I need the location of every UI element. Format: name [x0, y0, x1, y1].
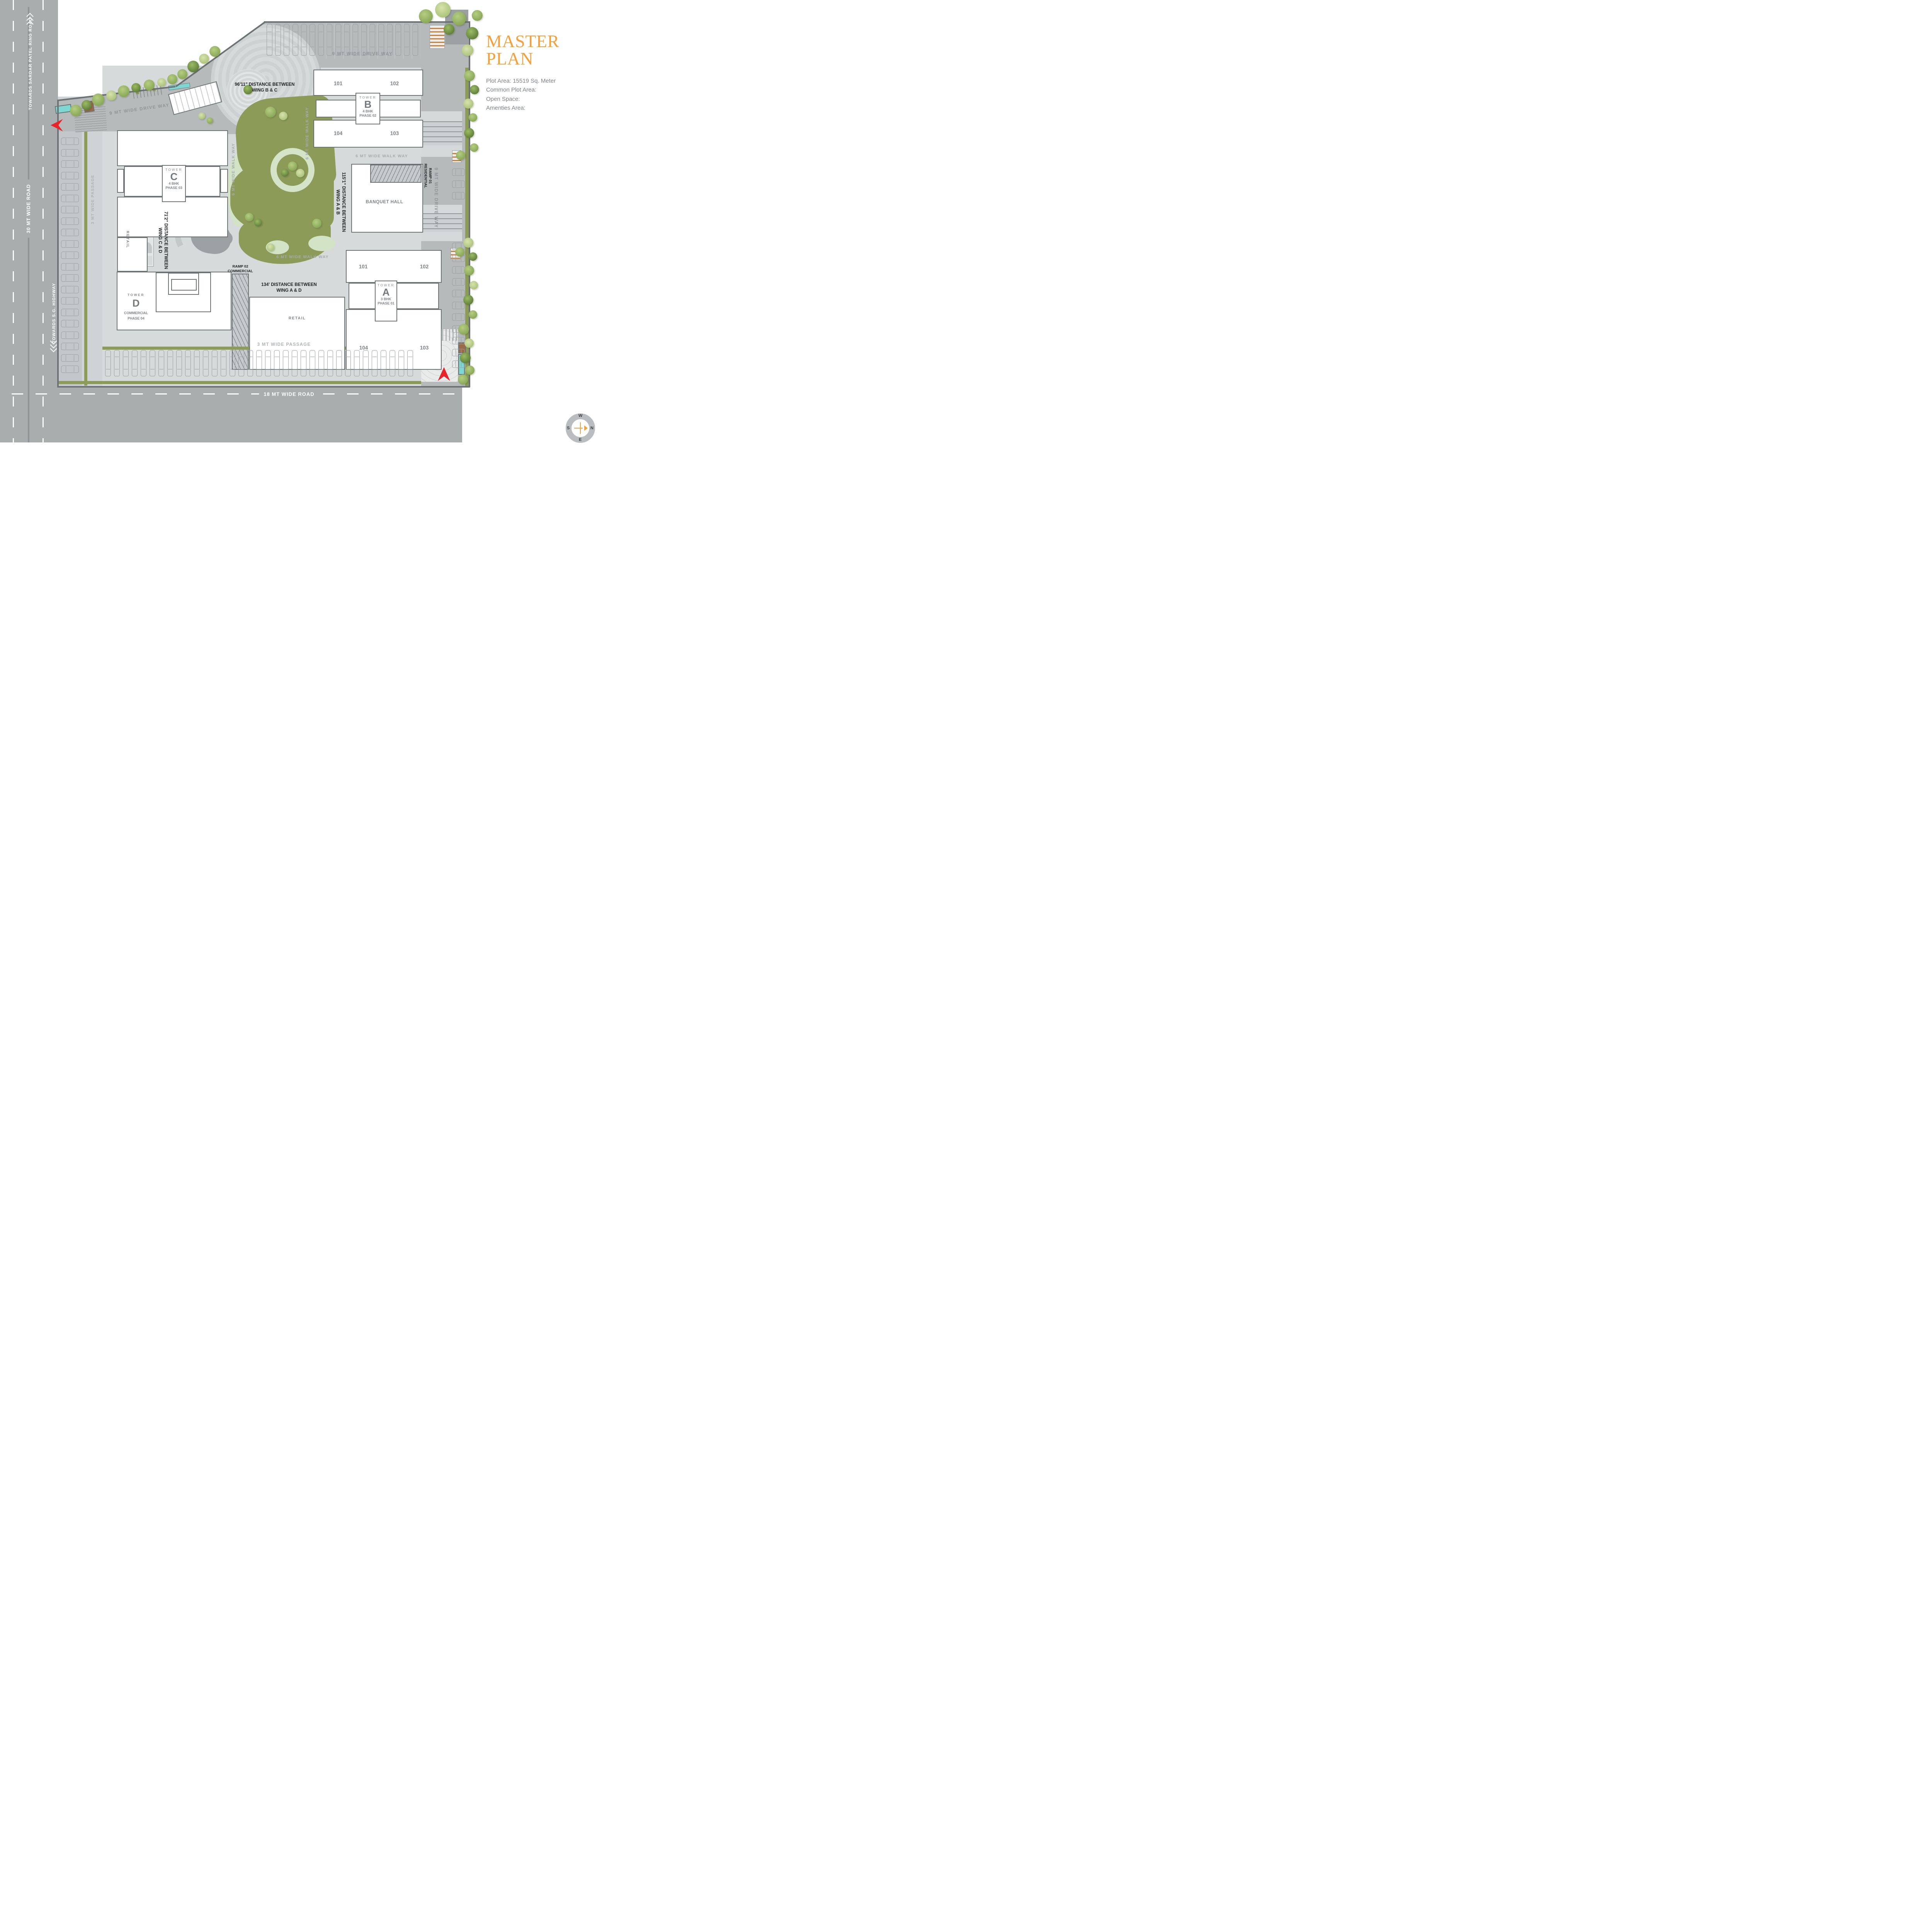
ramp-01-label: RAMP 01 RESIDENTIAL	[423, 163, 432, 188]
tree-icon	[281, 169, 289, 177]
car-icon	[194, 350, 200, 376]
car-icon	[369, 24, 375, 56]
plot-area-value: Plot Area: 15519 Sq. Meter	[486, 77, 556, 85]
label-passage-west: 3 MT WIDE PASSAGE	[90, 175, 95, 224]
tree-icon	[464, 128, 474, 138]
ramp-label-line: RESIDENTIAL	[423, 163, 427, 188]
car-icon	[267, 24, 272, 56]
tree-icon	[463, 238, 473, 248]
ramp-label-line: COMMERCIAL	[228, 269, 253, 274]
tree-icon	[279, 112, 287, 120]
tree-icon	[465, 366, 474, 375]
car-icon	[61, 297, 79, 304]
tree-icon	[92, 94, 104, 106]
master-plan-canvas: TOWARDS SARDAR PATEL RING ROAD 30 MT WID…	[0, 0, 606, 454]
car-icon	[335, 24, 341, 56]
ramp-label-line: RAMP 02	[228, 265, 253, 269]
car-icon	[301, 350, 306, 376]
tree-icon	[157, 78, 166, 87]
tree-icon	[82, 100, 92, 110]
compass-w: W	[578, 413, 582, 418]
car-icon	[398, 350, 404, 376]
car-icon	[293, 24, 298, 56]
tower-b-phase: PHASE 02	[356, 114, 379, 118]
tower-c-letter: C	[163, 172, 185, 182]
tower-a-phase: PHASE 01	[376, 301, 396, 306]
amenities-area-value: Amenties Area:	[486, 104, 556, 112]
car-icon	[61, 240, 79, 248]
car-icon	[452, 180, 465, 188]
car-icon	[61, 183, 79, 190]
car-icon	[61, 332, 79, 339]
car-icon	[61, 366, 79, 373]
car-icon	[203, 350, 209, 376]
tree-icon	[463, 99, 473, 109]
tower-a-letter: A	[376, 287, 396, 297]
tree-icon	[267, 243, 274, 251]
tree-icon	[455, 247, 464, 257]
car-icon	[284, 24, 289, 56]
tree-icon	[458, 324, 469, 335]
car-icon	[221, 350, 226, 376]
car-icon	[327, 24, 332, 56]
tree-icon	[167, 74, 177, 84]
compass: W N E S	[566, 413, 595, 443]
car-icon	[292, 350, 298, 376]
tower-b-letter: B	[356, 99, 379, 109]
car-icon	[452, 290, 465, 297]
distance-wing-a-d: 134' DISTANCE BETWEEN WING A & D	[261, 282, 317, 294]
car-icon	[318, 350, 324, 376]
car-icon	[61, 309, 79, 316]
tree-icon	[265, 107, 276, 117]
distance-line: WING A & B	[335, 172, 340, 232]
car-icon	[363, 350, 369, 376]
tree-icon	[469, 310, 477, 319]
distance-line: WING C & D	[157, 211, 163, 269]
tree-icon	[464, 265, 474, 276]
car-icon	[336, 350, 342, 376]
car-icon	[310, 24, 315, 56]
car-icon	[265, 350, 271, 376]
tower-c-core: TOWER C 4 BHK PHASE 03	[162, 165, 186, 202]
car-icon	[452, 278, 465, 286]
banquet-hall-label: BANQUET HALL	[366, 200, 403, 204]
car-icon	[372, 350, 378, 376]
retail-south-label: RETAIL	[289, 316, 306, 321]
car-icon	[61, 286, 79, 293]
label-walkway-center: 6 MT WIDE WALK WAY	[305, 107, 310, 160]
car-icon	[378, 24, 384, 56]
car-icon	[327, 350, 333, 376]
car-icon	[452, 168, 465, 176]
car-icon	[61, 343, 79, 350]
label-passage-south: 3 MT WIDE PASSAGE	[257, 342, 311, 347]
car-icon	[301, 24, 307, 56]
label-walkway-north: 6 MT WIDE WALK WAY	[355, 154, 408, 158]
tower-b-type: 4 BHK	[356, 109, 379, 114]
tree-icon	[199, 54, 209, 64]
car-icon	[61, 195, 79, 202]
car-icon	[176, 350, 182, 376]
tree-icon	[470, 143, 478, 152]
tree-icon	[106, 90, 116, 100]
tree-icon	[131, 83, 141, 92]
car-icon	[381, 350, 386, 376]
tree-icon	[70, 105, 82, 116]
car-icon	[452, 302, 465, 309]
car-icon	[452, 266, 465, 274]
tower-c-type: 4 BHK	[163, 182, 185, 186]
compass-axis	[580, 422, 581, 434]
car-icon	[61, 172, 79, 179]
car-icon	[310, 350, 315, 376]
car-icon	[238, 350, 244, 376]
title-line2: PLAN	[486, 50, 560, 67]
distance-line: 134' DISTANCE BETWEEN	[261, 282, 317, 288]
car-icon	[274, 350, 280, 376]
tree-icon	[296, 169, 304, 177]
label-walkway-west: 6 MT WIDE WALK WAY	[231, 143, 236, 196]
tree-icon	[472, 10, 483, 21]
ramp-02-label: RAMP 02 COMMERCIAL	[228, 265, 253, 274]
car-icon	[185, 350, 191, 376]
car-icon	[452, 192, 465, 199]
car-icon	[150, 350, 155, 376]
car-icon	[61, 149, 79, 156]
tower-a-type: 3 BHK	[376, 297, 396, 301]
car-icon	[452, 313, 465, 321]
car-icon	[275, 24, 281, 56]
ramp-label-line: RAMP 01	[427, 163, 432, 188]
car-icon	[114, 350, 120, 376]
tree-icon	[177, 69, 187, 79]
car-icon	[354, 350, 360, 376]
car-icon	[61, 274, 79, 282]
tree-icon	[462, 44, 473, 56]
car-icon	[345, 350, 351, 376]
distance-line: 71'2" DISTANCE BETWEEN	[163, 211, 168, 269]
tree-icon	[245, 213, 253, 221]
car-icon	[61, 229, 79, 236]
car-icon	[61, 263, 79, 270]
tree-icon	[187, 61, 199, 72]
car-icon	[389, 350, 395, 376]
tree-icon	[144, 80, 155, 90]
car-icon	[61, 320, 79, 327]
tree-icon	[118, 85, 129, 97]
car-icon	[247, 350, 253, 376]
car-icon	[361, 24, 367, 56]
car-icon	[412, 24, 418, 56]
tree-icon	[460, 352, 471, 363]
car-icon	[61, 138, 79, 145]
tree-icon	[435, 2, 451, 17]
tree-icon	[464, 70, 475, 81]
common-plot-area-value: Common Plot Area:	[486, 85, 556, 94]
tower-b-core: TOWER B 4 BHK PHASE 02	[355, 93, 380, 124]
tree-icon	[469, 281, 478, 289]
car-icon	[61, 218, 79, 225]
car-icon	[230, 350, 235, 376]
distance-line: 96'11" DISTANCE BETWEEN	[235, 82, 295, 88]
distance-wing-c-d: 71'2" DISTANCE BETWEEN WING C & D	[157, 211, 168, 269]
tree-icon	[419, 9, 433, 23]
car-icon	[105, 350, 111, 376]
car-icon	[283, 350, 289, 376]
car-icon	[167, 350, 173, 376]
tree-icon	[464, 338, 474, 348]
plot-details: Plot Area: 15519 Sq. Meter Common Plot A…	[486, 77, 556, 112]
distance-line: WING A & D	[261, 288, 317, 294]
tree-icon	[207, 117, 213, 124]
car-icon	[407, 350, 413, 376]
tree-icon	[452, 12, 466, 26]
car-icon	[132, 350, 138, 376]
car-icon	[387, 24, 393, 56]
distance-line: WING B & C	[235, 88, 295, 94]
tree-icon	[458, 374, 468, 384]
label-driveway-north: 9 MT WIDE DRIVE WAY	[332, 52, 393, 56]
car-icon	[404, 24, 410, 56]
tree-icon	[254, 219, 262, 226]
tree-icon	[470, 85, 479, 94]
title-line1: MASTER	[486, 32, 560, 50]
compass-e: E	[579, 437, 582, 442]
tree-icon	[463, 295, 473, 305]
car-icon	[61, 252, 79, 259]
label-driveway-east: 9 MT WIDE DRIVE WAY	[434, 168, 438, 228]
distance-wing-b-c: 96'11" DISTANCE BETWEEN WING B & C	[235, 82, 295, 94]
tower-a-core: TOWER A 3 BHK PHASE 01	[375, 281, 397, 321]
distance-line: 115'1" DISTANCE BETWEEN	[340, 172, 346, 232]
car-icon	[61, 354, 79, 362]
tower-c-phase: PHASE 03	[163, 186, 185, 190]
compass-s: S	[567, 426, 570, 430]
car-icon	[344, 24, 350, 56]
tree-icon	[444, 24, 454, 35]
compass-north-arrow-icon	[584, 425, 588, 431]
car-icon	[352, 24, 358, 56]
page-title: MASTER PLAN	[486, 32, 560, 67]
car-icon	[395, 24, 401, 56]
car-icon	[256, 350, 262, 376]
tree-icon	[469, 252, 477, 261]
tree-icon	[198, 112, 205, 119]
tree-icon	[209, 46, 220, 57]
tree-icon	[288, 162, 297, 171]
label-walkway-south: 6 MT WIDE WALK WAY	[276, 255, 329, 259]
tree-icon	[312, 219, 321, 228]
car-icon	[452, 337, 465, 344]
car-icon	[123, 350, 129, 376]
car-icon	[318, 24, 324, 56]
open-space-value: Open Space:	[486, 95, 556, 104]
car-icon	[158, 350, 164, 376]
car-icon	[141, 350, 146, 376]
car-icon	[61, 160, 79, 168]
compass-n: N	[590, 426, 594, 430]
car-icon	[212, 350, 218, 376]
tree-icon	[469, 113, 477, 122]
retail-west-label: RETAIL	[126, 231, 130, 248]
tree-icon	[466, 27, 478, 39]
distance-wing-a-b: 115'1" DISTANCE BETWEEN WING A & B	[335, 172, 346, 232]
tree-icon	[456, 151, 465, 160]
car-icon	[61, 206, 79, 213]
